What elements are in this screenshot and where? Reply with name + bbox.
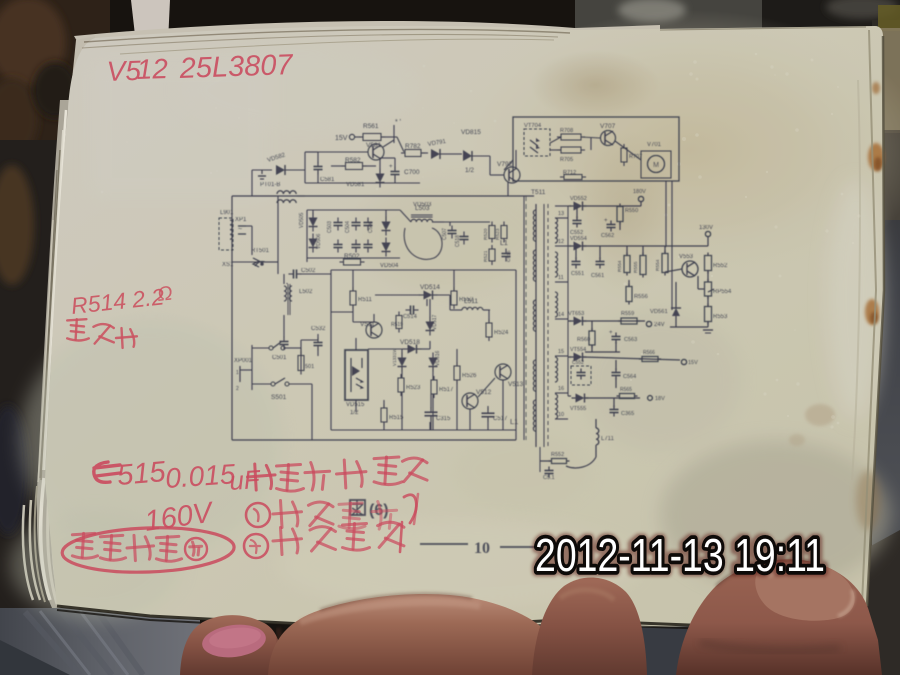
svg-text:2012-11-13 19:11: 2012-11-13 19:11	[535, 529, 825, 581]
